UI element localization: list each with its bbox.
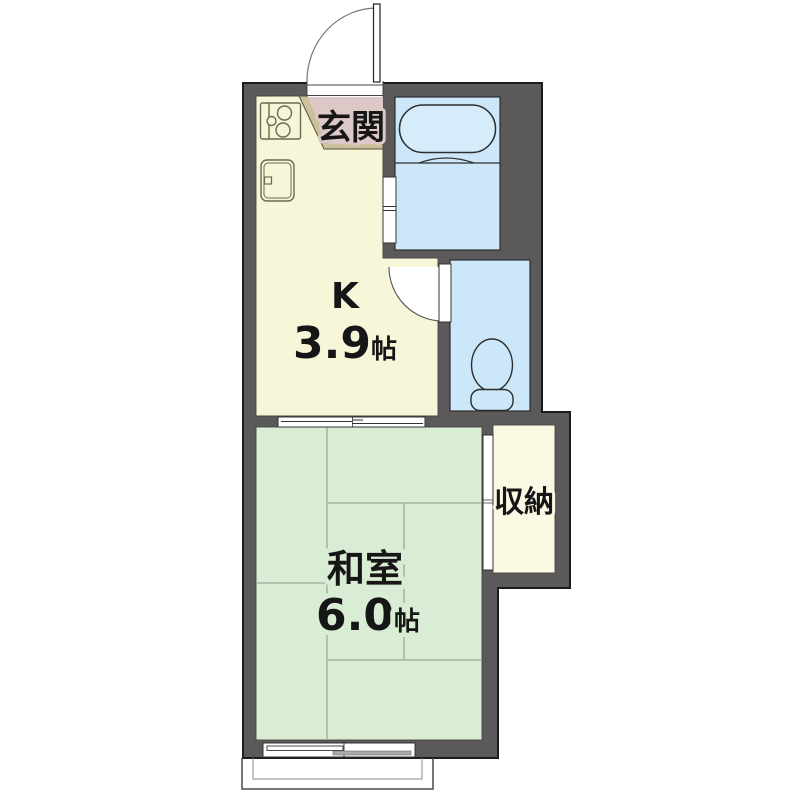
floor-plan-canvas: 玄関 K 3.9帖 和室 6.0帖 収納 — [0, 0, 800, 800]
entrance-label: 玄関 — [317, 108, 385, 148]
entrance-opening — [307, 81, 383, 97]
kitchen-sliding-door — [278, 417, 425, 427]
window-pane-right — [333, 751, 411, 755]
kitchen-size-value: 3.9 — [293, 318, 371, 369]
tatami-room-size-unit: 帖 — [394, 607, 420, 637]
balcony-inner-line — [253, 758, 422, 779]
kitchen-label: K — [331, 276, 360, 317]
toilet-door-leaf — [439, 264, 451, 322]
storage-sliding-door — [483, 435, 493, 570]
sliding-window — [263, 743, 415, 757]
window-pane-left — [267, 746, 343, 751]
floor-plan: 玄関 K 3.9帖 和室 6.0帖 収納 — [0, 0, 800, 800]
toilet-icon — [471, 339, 513, 411]
balcony-outline — [242, 758, 433, 789]
balcony — [242, 758, 433, 789]
kitchen-size-unit: 帖 — [371, 335, 397, 365]
entrance-door-leaf — [374, 4, 381, 82]
storage-label: 収納 — [494, 485, 554, 520]
bathroom-door — [383, 177, 396, 243]
stove-burners-icon — [261, 103, 301, 139]
front-door — [307, 4, 383, 97]
tatami-room-size-value: 6.0 — [316, 590, 394, 641]
tatami-room-label: 和室 — [327, 547, 403, 591]
door-swing-arc — [307, 8, 377, 81]
